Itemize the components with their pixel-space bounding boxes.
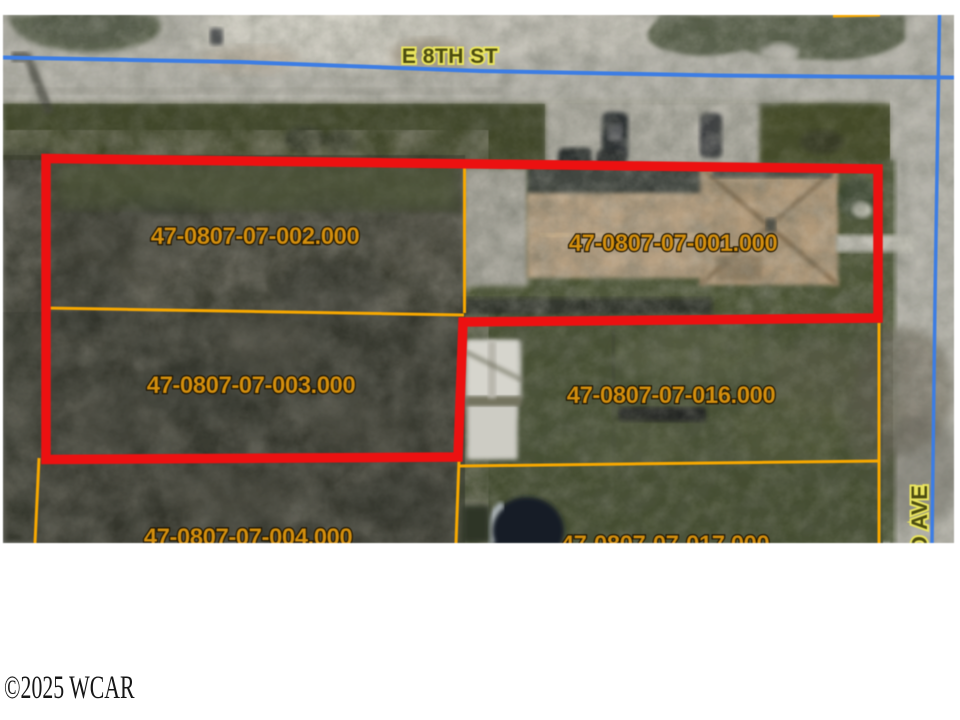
svg-text:47-0807-07-016.000: 47-0807-07-016.000	[567, 382, 776, 409]
svg-text:47-0807-07-001.000: 47-0807-07-001.000	[569, 230, 778, 257]
svg-text:47-0807-07-017.000: 47-0807-07-017.000	[561, 531, 770, 543]
svg-text:47-0807-07-003.000: 47-0807-07-003.000	[147, 372, 356, 399]
svg-text:E 8TH ST: E 8TH ST	[402, 45, 498, 68]
svg-text:D AVE: D AVE	[907, 485, 932, 543]
svg-text:47-0807-07-004.000: 47-0807-07-004.000	[144, 524, 353, 543]
svg-text:47-0807-07-002.000: 47-0807-07-002.000	[151, 223, 360, 250]
